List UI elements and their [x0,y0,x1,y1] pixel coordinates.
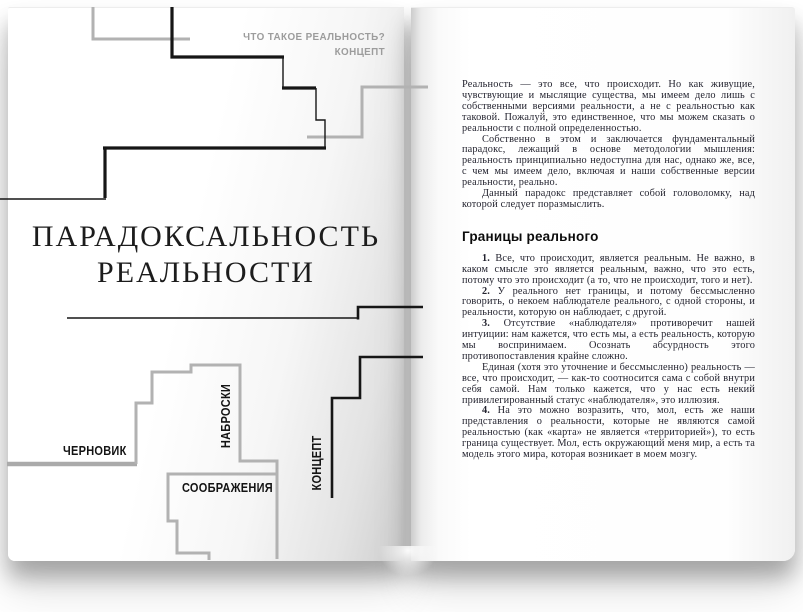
item-number: 3. [482,318,490,329]
item-number: 4. [482,405,490,416]
item-number: 1. [482,253,490,264]
item-text: Отсутствие «наблюдателя» противоречит на… [462,318,755,362]
chapter-title-line1: ПАРАДОКСАЛЬНОСТЬ [28,219,384,255]
continuation-paragraph: Единая (хотя это уточнение и бессмысленн… [462,363,755,407]
item-text: На это можно возразить, что, мол, есть ж… [462,405,755,460]
chapter-title: ПАРАДОКСАЛЬНОСТЬ РЕАЛЬНОСТИ [28,219,384,291]
running-header-line2: КОНЦЕПТ [178,45,385,60]
section-heading: Границы реального [462,232,755,243]
item-text: Все, что происходит, является реальным. … [462,253,755,286]
numbered-paragraph: 1. Все, что происходит, является реальны… [462,254,755,287]
numbered-paragraph: 4. На это можно возразить, что, мол, ест… [462,406,755,461]
label-sketches: НАБРОСКИ [219,384,233,448]
label-draft: ЧЕРНОВИК [63,444,127,458]
item-text: У реального нет границы, и потому бессмы… [462,286,755,319]
running-header-line1: ЧТО ТАКОЕ РЕАЛЬНОСТЬ? [178,30,385,45]
numbered-paragraph: 3. Отсутствие «наблюдателя» противоречит… [462,319,755,363]
body-text-column: Реальность — это все, что происходит. Но… [411,8,795,461]
item-number: 2. [482,286,490,297]
intro-paragraph: Реальность — это все, что происходит. Но… [462,80,755,135]
label-considerations: СООБРАЖЕНИЯ [182,481,273,495]
right-page: Реальность — это все, что происходит. Но… [411,7,795,561]
label-concept: КОНЦЕПТ [310,435,324,490]
running-header: ЧТО ТАКОЕ РЕАЛЬНОСТЬ? КОНЦЕПТ [178,30,385,60]
intro-paragraph: Данный парадокс представляет собой голов… [462,189,755,211]
item-text: Единая (хотя это уточнение и бессмысленн… [462,362,755,406]
chapter-title-line2: РЕАЛЬНОСТИ [28,255,384,291]
intro-paragraph: Собственно в этом и заключается фундамен… [462,135,755,190]
numbered-paragraph: 2. У реального нет границы, и потому бес… [462,287,755,320]
book-spread: Реальность — это все, что происходит. Но… [0,0,803,612]
